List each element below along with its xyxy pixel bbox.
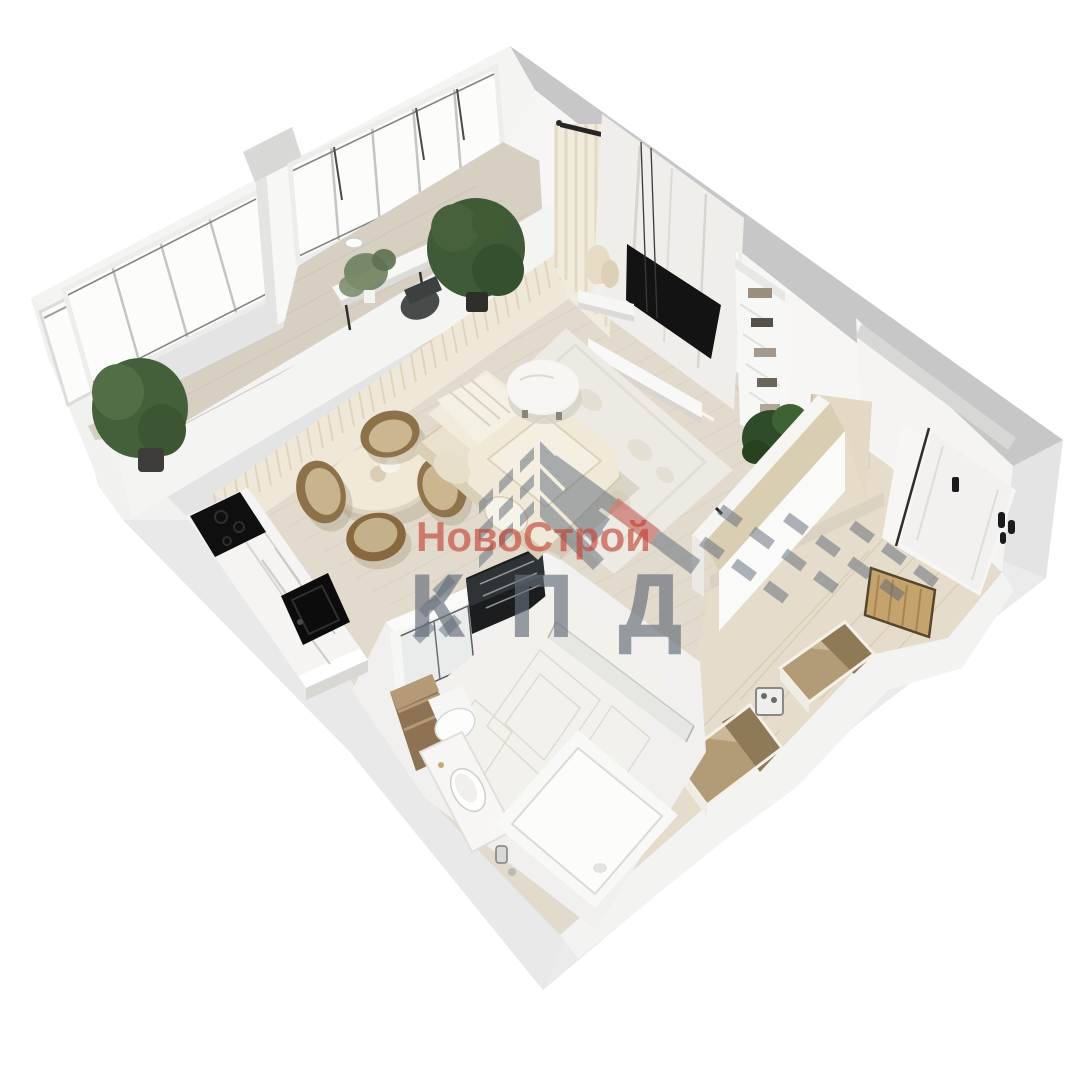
svg-text:НовоСтрой: НовоСтрой xyxy=(416,513,651,560)
svg-text:КПД: КПД xyxy=(410,556,728,655)
